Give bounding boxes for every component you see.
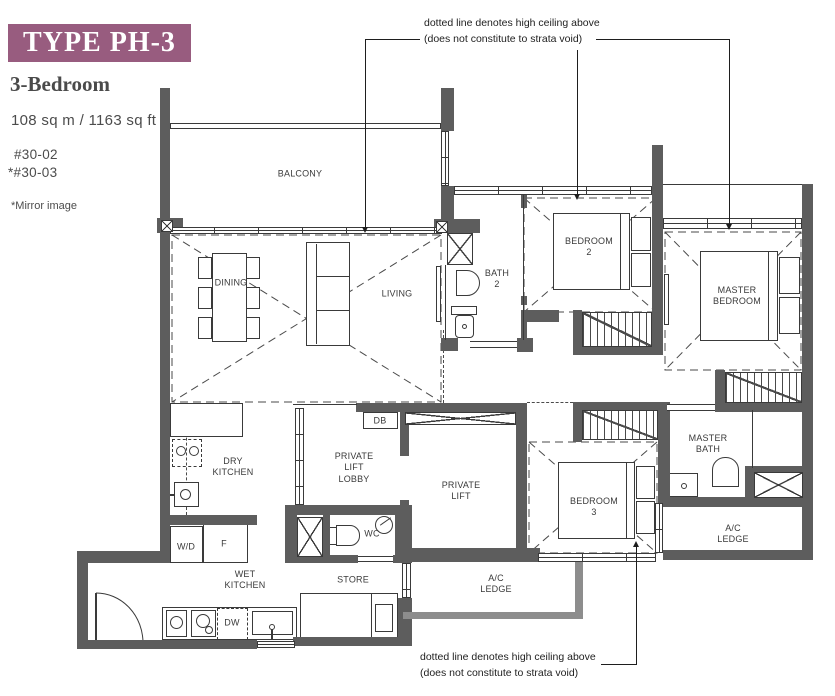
bath2-basin	[456, 270, 480, 296]
bath2-toilet-cistern	[451, 306, 477, 315]
dining-chair	[246, 317, 260, 339]
label-dishwasher: DW	[224, 617, 239, 628]
bedroom3-pillow	[636, 466, 655, 499]
window	[402, 563, 411, 598]
bed-fold-line	[620, 214, 621, 289]
bedroom3-wardrobe	[582, 410, 658, 440]
label-master-bedroom: MASTER BEDROOM	[713, 285, 761, 308]
bed-fold-line	[626, 463, 627, 538]
wall	[77, 563, 88, 649]
wall	[77, 640, 257, 649]
sofa-seat-line	[317, 310, 349, 311]
wall	[652, 145, 663, 347]
balcony-sliding-door	[170, 227, 442, 234]
store-shelf-divider	[371, 594, 372, 640]
edge-line	[663, 184, 802, 185]
partition-line	[293, 404, 357, 405]
wall	[521, 310, 559, 322]
unit-number-2: *#30-03	[8, 165, 57, 180]
mirror-image-note: *Mirror image	[11, 200, 77, 212]
window-band	[454, 186, 652, 195]
bedroom2-wardrobe	[582, 312, 652, 347]
leader-line	[577, 50, 578, 196]
dry-kitchen-counter	[170, 403, 243, 437]
bedroom2-pillow	[631, 253, 651, 287]
store-shelf-box	[375, 604, 393, 632]
sink-dot	[180, 489, 191, 500]
wall	[573, 410, 582, 442]
label-living: LIVING	[382, 288, 413, 299]
wall	[715, 403, 813, 412]
sink-tap	[271, 629, 273, 640]
sofa-seat-line	[317, 276, 349, 277]
sofa	[306, 242, 350, 346]
window	[295, 408, 304, 505]
label-bath2: BATH 2	[485, 268, 509, 291]
label-db: DB	[374, 415, 387, 426]
leader-line	[729, 39, 730, 226]
label-balcony: BALCONY	[278, 168, 322, 179]
wall	[395, 505, 412, 557]
ledge-wall	[403, 612, 583, 619]
wall	[323, 515, 330, 557]
wall	[516, 403, 527, 553]
label-ac-ledge-right: A/C LEDGE	[717, 523, 749, 546]
hob-burner	[189, 446, 199, 456]
wall	[160, 233, 170, 551]
door-threshold	[470, 341, 517, 348]
label-dry-kitchen: DRY KITCHEN	[213, 456, 254, 479]
master-bath-sink-dot	[681, 483, 687, 489]
wall	[285, 505, 412, 515]
leader-arrow	[362, 227, 368, 233]
dining-chair	[198, 317, 212, 339]
balcony-top-edge	[170, 123, 441, 129]
master-tv-console	[664, 274, 669, 325]
lift-shaft	[405, 412, 516, 425]
bedroom-type: 3-Bedroom	[10, 72, 110, 97]
wall	[160, 88, 170, 234]
unit-number-1: #30-02	[14, 147, 58, 162]
leader-line	[601, 664, 637, 665]
hob-burner	[176, 446, 186, 456]
label-ac-ledge-left: A/C LEDGE	[480, 573, 512, 596]
leader-line	[636, 547, 637, 664]
wall	[285, 515, 297, 563]
wall	[160, 515, 257, 525]
note-line2: (does not constitute to strata void)	[424, 33, 582, 45]
partition-line	[523, 195, 524, 340]
entrance-door-swing	[94, 592, 146, 646]
wall	[77, 551, 170, 563]
wall	[521, 195, 527, 208]
window	[441, 131, 449, 186]
tv-console	[436, 266, 441, 322]
dining-chair	[246, 257, 260, 279]
wall	[441, 88, 454, 131]
label-private-lift-lobby: PRIVATE LIFT LOBBY	[335, 451, 374, 485]
high-ceiling-dash-bedroom3-entry	[527, 402, 573, 403]
hob-burner	[205, 626, 213, 634]
window	[655, 503, 663, 553]
note-line2: (does not constitute to strata void)	[420, 667, 578, 679]
wc-toilet-bowl	[336, 525, 360, 546]
wall	[663, 550, 813, 560]
wall	[398, 548, 540, 562]
door-threshold	[358, 556, 393, 562]
bedroom3-pillow	[636, 501, 655, 534]
hob-burner	[170, 616, 183, 629]
door-threshold	[667, 404, 715, 411]
master-bath-shaft	[754, 472, 803, 498]
window-cross-marker	[436, 221, 448, 233]
dining-table	[212, 253, 247, 342]
bath2-toilet-dot	[462, 324, 467, 329]
wall	[573, 347, 663, 355]
wall	[356, 403, 527, 412]
bedroom2-pillow	[631, 217, 651, 251]
dining-chair	[198, 287, 212, 309]
label-master-bath: MASTER BATH	[689, 433, 728, 456]
label-private-lift: PRIVATE LIFT	[442, 480, 481, 503]
label-bedroom2: BEDROOM 2	[565, 236, 613, 259]
wc-shaft	[297, 517, 323, 557]
wall	[293, 637, 412, 646]
leader-line	[365, 39, 366, 229]
leader-line	[365, 39, 420, 40]
window-band	[663, 218, 802, 229]
leader-line	[596, 39, 730, 40]
wall	[658, 402, 670, 503]
sofa-back-line	[316, 244, 317, 344]
high-ceiling-note-bottom: dotted line denotes high ceiling above(d…	[420, 650, 596, 682]
label-washer-dryer: W/D	[177, 541, 195, 552]
label-dining: DINING	[215, 277, 248, 288]
master-pillow	[779, 257, 800, 294]
leader-arrow	[633, 541, 639, 547]
label-wc: WC	[364, 528, 379, 539]
wall	[521, 296, 527, 305]
window	[257, 641, 295, 648]
note-line1: dotted line denotes high ceiling above	[420, 651, 596, 663]
master-bath-toilet	[712, 457, 739, 487]
window-band	[538, 553, 656, 562]
floor-plan: TYPE PH-3 3-Bedroom 108 sq m / 1163 sq f…	[0, 0, 835, 696]
label-wet-kitchen: WET KITCHEN	[225, 569, 266, 592]
ledge-wall	[575, 562, 583, 615]
label-store: STORE	[337, 574, 369, 585]
dining-chair	[198, 257, 212, 279]
shower-divider-line	[752, 410, 753, 468]
leader-arrow	[726, 224, 732, 230]
high-ceiling-note-top: dotted line denotes high ceiling above(d…	[424, 16, 600, 48]
wall	[441, 338, 458, 351]
label-bedroom3: BEDROOM 3	[570, 496, 618, 519]
label-fridge: F	[221, 538, 227, 549]
wall	[521, 322, 527, 347]
unit-type-badge: TYPE PH-3	[8, 24, 191, 62]
wall	[573, 402, 667, 410]
wall	[658, 497, 813, 507]
leader-arrow	[574, 194, 580, 200]
partition-line	[445, 265, 446, 340]
bath2-shaft	[447, 233, 473, 265]
bed-fold-line	[768, 252, 769, 340]
window-cross-marker	[161, 220, 173, 232]
master-wardrobe	[725, 372, 802, 403]
dining-chair	[246, 287, 260, 309]
unit-area: 108 sq m / 1163 sq ft	[11, 112, 156, 129]
master-pillow	[779, 297, 800, 334]
note-line1: dotted line denotes high ceiling above	[424, 17, 600, 29]
